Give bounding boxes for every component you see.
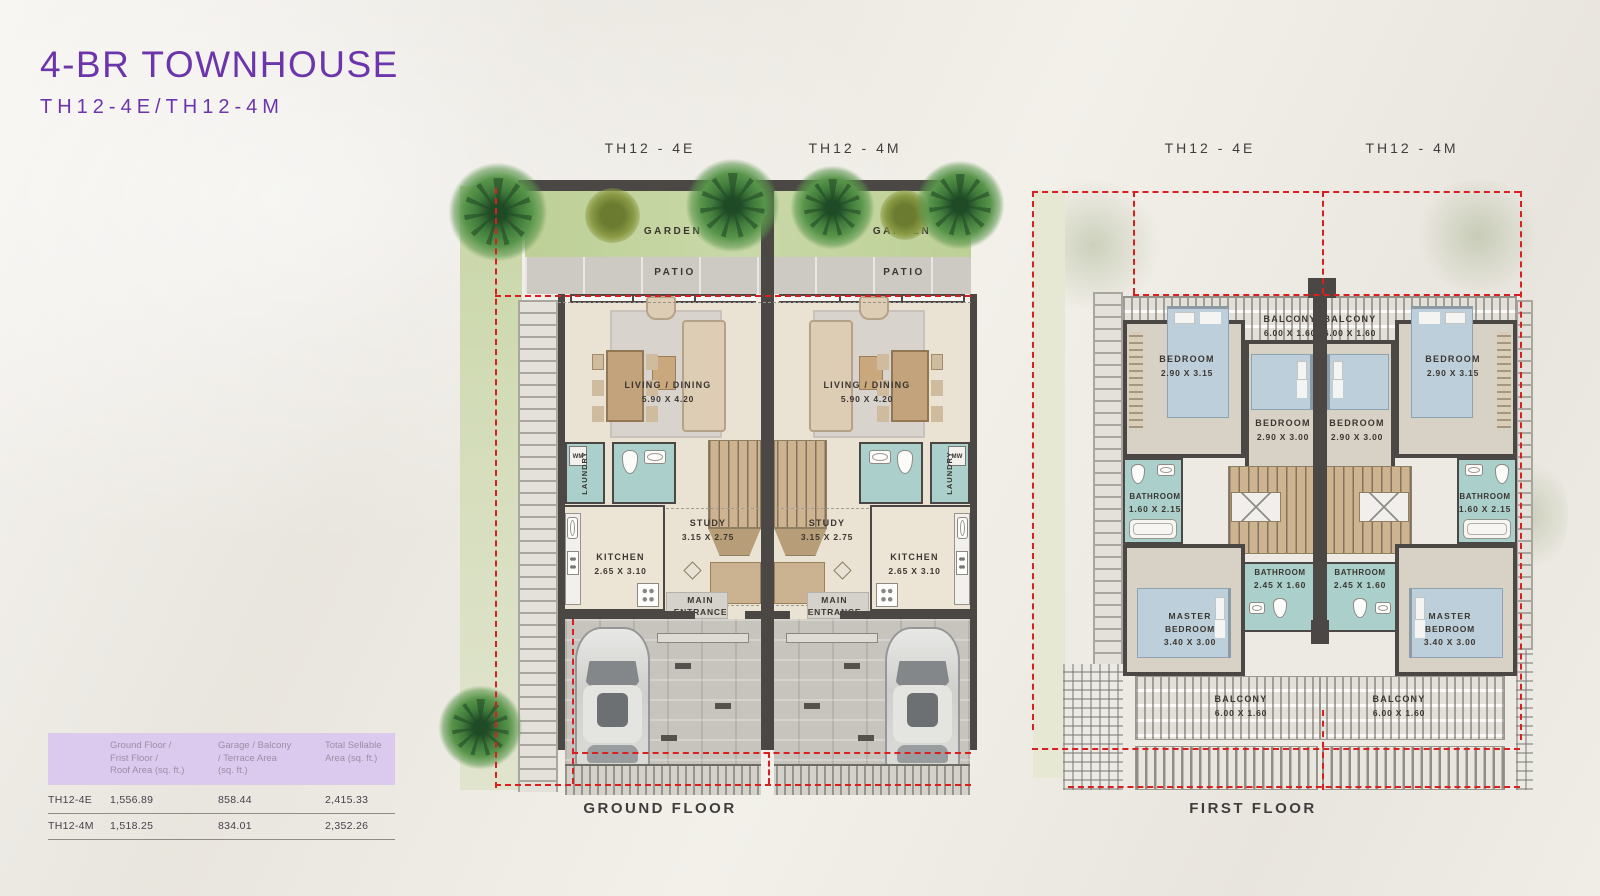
- master-bedroom-label: MASTERBEDROOM3.40 X 3.00: [1395, 610, 1505, 649]
- unit-label-th12-4e: TH12 - 4E: [580, 140, 720, 156]
- room-dim: 3.40 X 3.00: [1135, 636, 1245, 649]
- driveway-hatch: [774, 764, 970, 795]
- bed: [1251, 354, 1313, 410]
- toilet: [1131, 464, 1145, 484]
- room-name: BATHROOM: [1129, 492, 1180, 501]
- armchair: [646, 296, 676, 320]
- room-dim: 2.65 X 3.10: [563, 564, 678, 578]
- boundary-line: [1322, 191, 1324, 294]
- room-name: LIVING / DINING: [823, 380, 910, 390]
- palm-tree-icon: [685, 158, 780, 253]
- ground-floor-canvas: GARDEN GARDEN PATIO PATIO LIVING / DININ…: [460, 180, 985, 795]
- brochure-page: { "page": { "title": "4-BR TOWNHOUSE", "…: [0, 0, 1600, 896]
- paving-tile: [844, 663, 860, 669]
- boundary-line: [572, 619, 574, 784]
- label-line: MAIN: [687, 595, 714, 605]
- room-dim: 2.90 X 3.15: [1131, 366, 1243, 380]
- header-cell-floor-area: Ground Floor / Frist Floor / Roof Area (…: [110, 740, 218, 778]
- side-walkway: [1093, 292, 1123, 664]
- room-dim: 1.60 X 2.15: [1113, 503, 1197, 516]
- room-dim: 6.00 X 1.60: [1295, 326, 1405, 340]
- setback-line: [558, 302, 971, 303]
- boundary-line: [1322, 710, 1324, 790]
- bathtub: [1463, 519, 1511, 539]
- boundary-line: [768, 752, 770, 784]
- balcony-label: BALCONY6.00 X 1.60: [1186, 692, 1296, 720]
- trellis-panel: [1063, 664, 1123, 790]
- room-name: BALCONY: [1373, 694, 1426, 704]
- room-name: BATHROOM: [1459, 492, 1510, 501]
- room-dim: 5.90 X 4.20: [797, 392, 937, 406]
- room-name: BEDROOM: [1135, 623, 1245, 636]
- floor-caption-ground: GROUND FLOOR: [520, 800, 800, 817]
- boundary-line: [1032, 191, 1034, 730]
- laundry-label: LAUNDRY: [943, 438, 957, 508]
- sink: [1249, 602, 1265, 614]
- room-name: LIVING / DINING: [624, 380, 711, 390]
- area-table-header: Ground Floor / Frist Floor / Roof Area (…: [48, 733, 395, 785]
- boundary-line: [572, 752, 971, 754]
- wall-entrance-left: [565, 611, 695, 619]
- room-dim: 2.65 X 3.10: [857, 564, 972, 578]
- stair-landing: [1359, 492, 1409, 522]
- sink: [869, 450, 891, 464]
- boundary-line: [495, 188, 497, 788]
- paving-tile: [675, 663, 691, 669]
- title-block: 4-BR TOWNHOUSE TH12-4E/TH12-4M: [40, 44, 399, 119]
- master-bedroom-label: MASTERBEDROOM3.40 X 3.00: [1135, 610, 1245, 649]
- car-windshield: [895, 661, 950, 687]
- room-dim: 2.90 X 3.15: [1397, 366, 1509, 380]
- laundry-label: LAUNDRY: [578, 438, 592, 508]
- car-sunroof: [907, 693, 938, 727]
- page-title: 4-BR TOWNHOUSE: [40, 44, 399, 86]
- unit-label-th12-4e: TH12 - 4E: [1140, 140, 1280, 156]
- sink: [644, 450, 666, 464]
- boundary-line: [1032, 748, 1520, 750]
- ground-floor-plan: TH12 - 4E TH12 - 4M GARDEN GARDEN PATIO …: [460, 138, 985, 830]
- wall-entrance-right: [774, 611, 790, 619]
- room-name: BEDROOM: [1395, 623, 1505, 636]
- bedroom-label: BEDROOM2.90 X 3.15: [1131, 352, 1243, 380]
- bathroom-ground: [859, 442, 923, 504]
- kitchen-sink: [957, 517, 968, 539]
- driveway-hatch: [565, 764, 761, 795]
- label-line: MAIN: [821, 595, 848, 605]
- shrub-icon: [585, 188, 640, 243]
- palm-tree-icon: [438, 685, 523, 770]
- paving-strip: [657, 633, 749, 643]
- armchair: [859, 296, 889, 320]
- pergola: [1135, 746, 1318, 790]
- area-table: Ground Floor / Frist Floor / Roof Area (…: [48, 733, 395, 840]
- kitchen-label: KITCHEN2.65 X 3.10: [563, 550, 678, 578]
- side-walkway: [1516, 300, 1533, 650]
- header-cell-garage-area: Garage / Balcony / Terrace Area (sq. ft.…: [218, 740, 325, 778]
- kitchen-label: KITCHEN2.65 X 3.10: [857, 550, 972, 578]
- townhouse-unit-first: BALCONY6.00 X 1.60 BEDROOM2.90 X 3.15 BE…: [1320, 296, 1517, 790]
- dining-chairs: [931, 354, 943, 370]
- living-dining-label: LIVING / DINING5.90 X 4.20: [598, 378, 738, 406]
- room-dim: 5.90 X 4.20: [598, 392, 738, 406]
- table-row: TH12-4M 1,518.25 834.01 2,352.26: [48, 814, 395, 840]
- bathroom-label: BATHROOM1.60 X 2.15: [1113, 490, 1197, 516]
- row-garage-area: 834.01: [218, 820, 325, 832]
- side-walkway: [518, 300, 558, 792]
- sink: [1465, 464, 1483, 476]
- bathroom-label: BATHROOM1.60 X 2.15: [1443, 490, 1527, 516]
- room-name: BEDROOM: [1159, 354, 1214, 364]
- room-name: KITCHEN: [890, 552, 938, 562]
- wall-party: [1313, 296, 1327, 624]
- boundary-line: [1032, 191, 1520, 193]
- car-rear-glass: [897, 745, 948, 763]
- header-cell-empty: [48, 740, 110, 778]
- patio-label: PATIO: [605, 267, 745, 278]
- car-sunroof: [597, 693, 628, 727]
- wall-entrance-right: [840, 611, 970, 619]
- sink: [1375, 602, 1391, 614]
- room-name: MASTER: [1168, 611, 1211, 621]
- boundary-line: [1068, 786, 1520, 788]
- paving-strip: [786, 633, 878, 643]
- boundary-line: [495, 295, 971, 297]
- bathtub: [1129, 519, 1177, 539]
- unit-label-th12-4m: TH12 - 4M: [785, 140, 925, 156]
- room-name: BATHROOM: [1254, 568, 1305, 577]
- room-dim: 1.60 X 2.15: [1443, 503, 1527, 516]
- townhouse-unit-ground: LIVING / DINING5.90 X 4.20 WM LAUNDRY ST…: [558, 294, 768, 795]
- pergola: [1322, 746, 1505, 790]
- wardrobe: [1497, 332, 1511, 428]
- car: [575, 627, 650, 787]
- room-name: BALCONY: [1215, 694, 1268, 704]
- first-floor-canvas: BALCONY6.00 X 1.60 BEDROOM2.90 X 3.15 BE…: [1008, 180, 1533, 795]
- car-rear-glass: [587, 745, 638, 763]
- trellis-panel: [1516, 650, 1533, 790]
- paving-tile: [661, 735, 677, 741]
- room-name: STUDY: [690, 518, 727, 528]
- sink: [1157, 464, 1175, 476]
- townhouse-unit-ground: LIVING / DINING5.90 X 4.20 WM LAUNDRY ST…: [767, 294, 977, 795]
- table-row: TH12-4E 1,556.89 858.44 2,415.33: [48, 788, 395, 814]
- toilet: [1353, 598, 1367, 618]
- living-dining-label: LIVING / DINING5.90 X 4.20: [797, 378, 937, 406]
- kitchen-sink: [567, 517, 578, 539]
- room-name: STUDY: [809, 518, 846, 528]
- paving-tile: [804, 703, 820, 709]
- bed: [1327, 354, 1389, 410]
- wall-right: [970, 294, 977, 750]
- palm-tree-icon: [790, 165, 875, 250]
- room-dim: 6.00 X 1.60: [1186, 706, 1296, 720]
- car-windshield: [585, 661, 640, 687]
- boundary-line: [1520, 191, 1522, 740]
- room-name: BALCONY: [1324, 314, 1377, 324]
- bathroom-ground: [612, 442, 676, 504]
- row-total-area: 2,415.33: [325, 794, 395, 806]
- palm-tree-icon: [448, 162, 548, 262]
- page-subtitle: TH12-4E/TH12-4M: [40, 96, 399, 119]
- boundary-line: [1133, 191, 1135, 294]
- room-dim: 3.40 X 3.00: [1395, 636, 1505, 649]
- wall-left: [558, 294, 565, 750]
- row-floor-area: 1,518.25: [110, 820, 218, 832]
- header-cell-total-area: Total Sellable Area (sq. ft.): [325, 740, 395, 778]
- patio-label: PATIO: [834, 267, 974, 278]
- row-unit: TH12-4E: [48, 794, 110, 806]
- wall-entrance-left: [745, 611, 761, 619]
- toilet: [1495, 464, 1509, 484]
- side-garden-strip: [1033, 190, 1065, 778]
- sofa: [682, 320, 726, 432]
- row-unit: TH12-4M: [48, 820, 110, 832]
- balcony-label: BALCONY6.00 X 1.60: [1344, 692, 1454, 720]
- toilet: [1273, 598, 1287, 618]
- room-name: MASTER: [1428, 611, 1471, 621]
- row-total-area: 2,352.26: [325, 820, 395, 832]
- row-floor-area: 1,556.89: [110, 794, 218, 806]
- first-floor-plan: TH12 - 4E TH12 - 4M BALCONY6.00 X 1.60 B…: [1008, 138, 1533, 830]
- palm-tree-icon: [915, 160, 1005, 250]
- tree-shadow: [1408, 180, 1548, 290]
- floor-caption-first: FIRST FLOOR: [1113, 800, 1393, 817]
- bedroom-label: BEDROOM2.90 X 3.15: [1397, 352, 1509, 380]
- balcony-label: BALCONY6.00 X 1.60: [1295, 312, 1405, 340]
- paving-tile: [858, 735, 874, 741]
- unit-label-th12-4m: TH12 - 4M: [1342, 140, 1482, 156]
- wardrobe: [1129, 332, 1143, 428]
- room-dim: 6.00 X 1.60: [1344, 706, 1454, 720]
- wall-party: [1311, 620, 1329, 644]
- car: [885, 627, 960, 787]
- boundary-line: [1133, 294, 1520, 296]
- room-name: BEDROOM: [1329, 418, 1384, 428]
- room-name: BEDROOM: [1425, 354, 1480, 364]
- stair-landing: [1231, 492, 1281, 522]
- wall-party: [761, 191, 774, 750]
- row-garage-area: 858.44: [218, 794, 325, 806]
- paving-tile: [715, 703, 731, 709]
- sofa: [809, 320, 853, 432]
- toilet: [897, 450, 913, 474]
- townhouse-unit-first: BALCONY6.00 X 1.60 BEDROOM2.90 X 3.15 BE…: [1123, 296, 1320, 790]
- room-name: KITCHEN: [596, 552, 644, 562]
- boundary-line: [495, 784, 971, 786]
- dining-chairs: [592, 354, 604, 370]
- toilet: [622, 450, 638, 474]
- room-name: BATHROOM: [1334, 568, 1385, 577]
